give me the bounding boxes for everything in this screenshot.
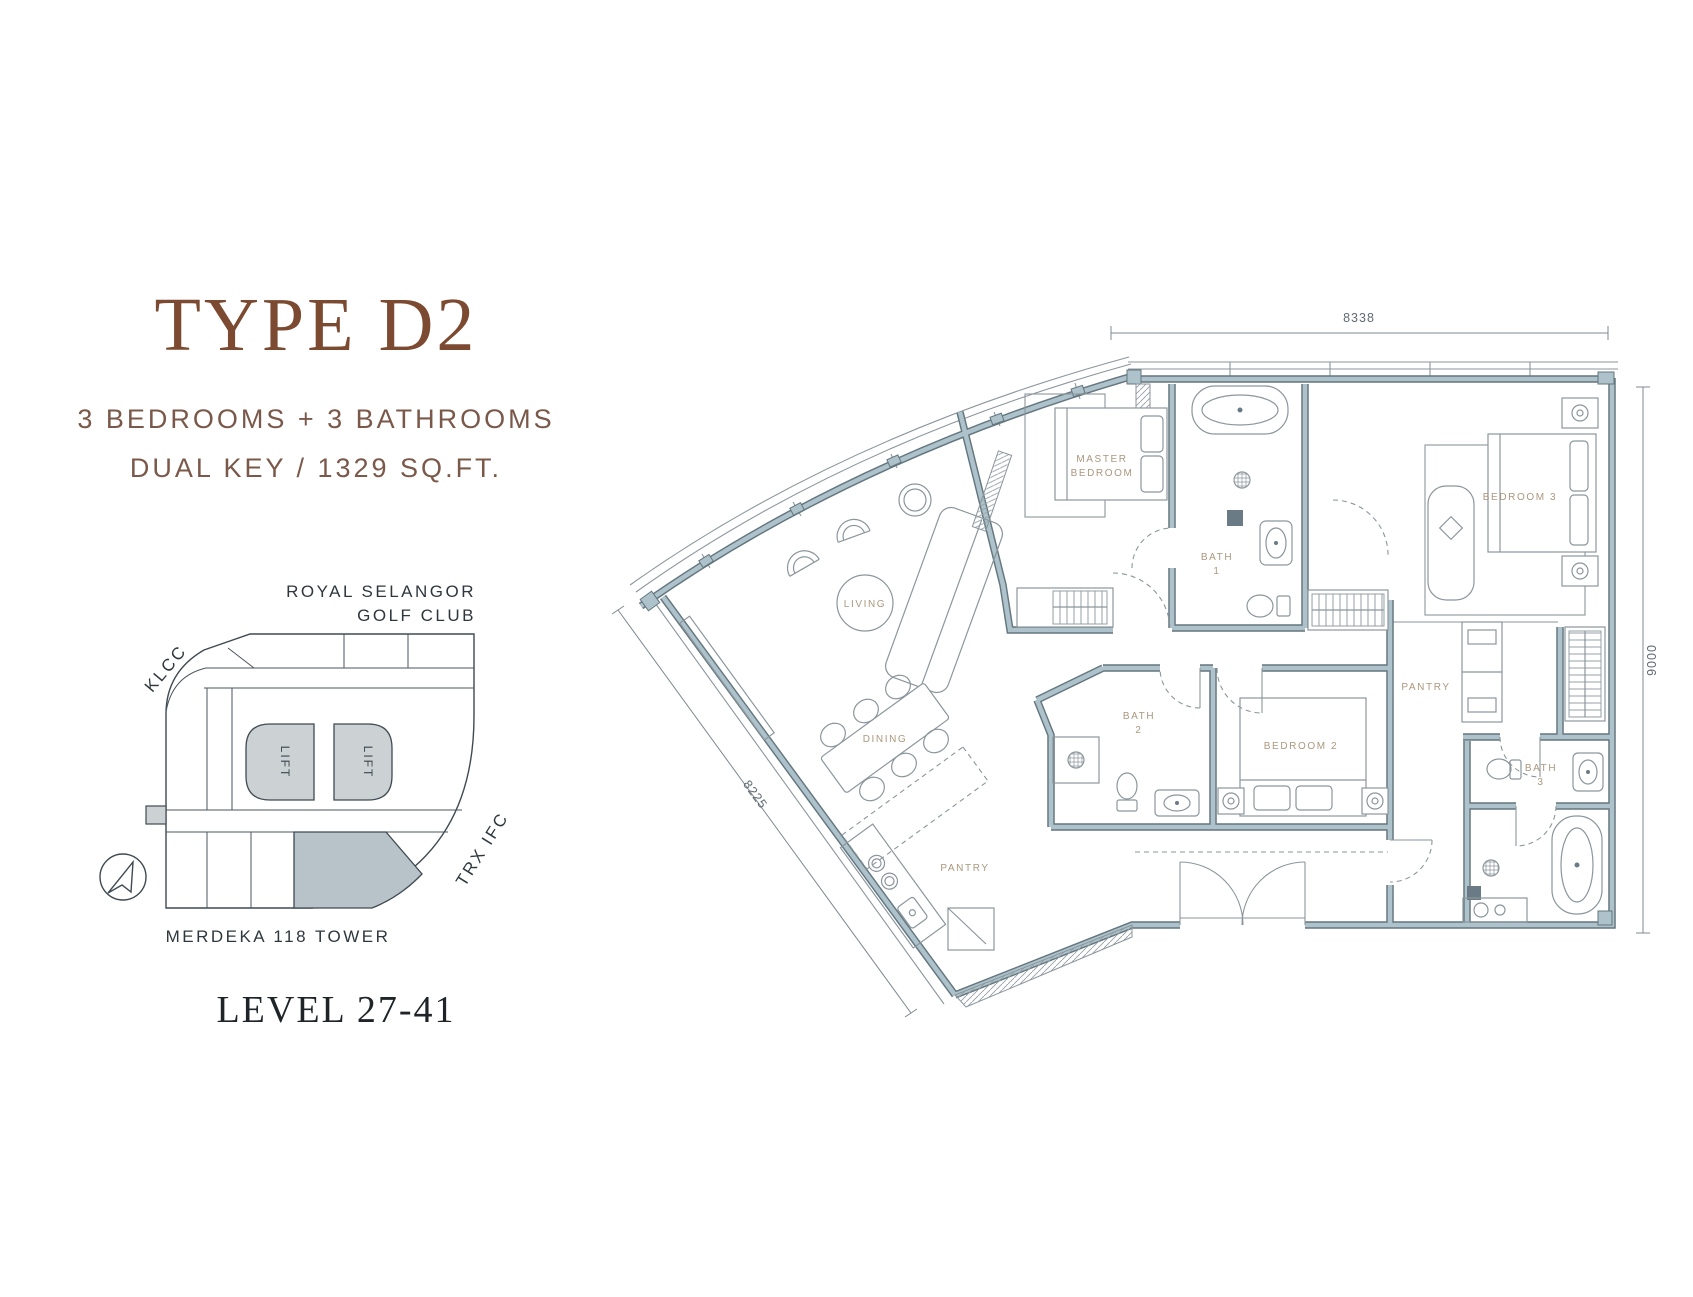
lift-label-1: LIFT [278, 746, 292, 779]
lift-label-2: LIFT [361, 746, 375, 779]
subtitle-area: DUAL KEY / 1329 SQ.FT. [130, 453, 502, 483]
bath2-fixtures [1053, 737, 1199, 816]
nightstand [1562, 556, 1598, 586]
room-label-pantry-kitchen: PANTRY [940, 863, 989, 874]
key-plan: ROYAL SELANGOR GOLF CLUB KLCC TRX IFC ME… [100, 582, 513, 1031]
room-label-bedroom3: BEDROOM 3 [1483, 492, 1557, 503]
bedroom3-furniture [1425, 398, 1605, 721]
room-label-master-bedroom-line2: BEDROOM [1071, 468, 1134, 479]
toilet [1487, 759, 1511, 779]
title-block: TYPE D2 3 BEDROOMS + 3 BATHROOMS DUAL KE… [77, 283, 554, 483]
bedroom2-bed [1240, 698, 1366, 816]
nightstand [1218, 788, 1244, 814]
room-label-bath3-line1: BATH [1525, 763, 1557, 774]
armchair [781, 545, 819, 577]
landmark-trx-ifc: TRX IFC [452, 809, 512, 890]
room-label-bath1-line2: 1 [1213, 566, 1220, 577]
landmark-golf-club-line2: GOLF CLUB [357, 606, 476, 625]
level-label: LEVEL 27-41 [216, 989, 455, 1031]
room-label-bath2-line2: 2 [1135, 725, 1142, 736]
dimension-right: 9000 [1645, 644, 1659, 676]
landmark-klcc: KLCC [141, 641, 191, 696]
room-label-bath3-line2: 3 [1537, 777, 1544, 788]
room-label-master-bedroom-line1: MASTER [1076, 454, 1127, 465]
page-title: TYPE D2 [155, 283, 478, 367]
floor-plan-sheet: TYPE D2 3 BEDROOMS + 3 BATHROOMS DUAL KE… [0, 0, 1693, 1297]
kitchen-counter [840, 824, 945, 948]
compass-icon [100, 854, 146, 900]
room-label-bedroom2: BEDROOM 2 [1264, 741, 1338, 752]
shower-drain [1483, 860, 1499, 876]
landmark-golf-club-line1: ROYAL SELANGOR [286, 582, 476, 601]
nightstand [1562, 398, 1598, 428]
landmark-merdeka-118: MERDEKA 118 TOWER [166, 927, 391, 946]
armchair [832, 515, 870, 543]
toilet [1117, 773, 1137, 799]
bath3-fixtures [1463, 753, 1603, 922]
highlighted-unit [294, 832, 422, 908]
service-ledge [955, 925, 1132, 1007]
dimension-top: 8338 [1343, 311, 1375, 325]
subtitle-bedrooms: 3 BEDROOMS + 3 BATHROOMS [77, 404, 554, 434]
chaise [1428, 486, 1474, 600]
room-label-dining: DINING [863, 734, 908, 745]
shower-drain [1234, 472, 1250, 488]
key-plan-service-block [146, 806, 166, 824]
unit-floor-plan: 8338 9000 8225 MASTER BEDROOM BATH 1 BED… [612, 311, 1659, 1017]
nightstand [1362, 788, 1388, 814]
room-label-living: LIVING [844, 599, 886, 610]
room-label-bath2-line1: BATH [1123, 711, 1155, 722]
living-furniture [680, 394, 1105, 740]
room-label-bath1-line1: BATH [1201, 552, 1233, 563]
toilet [1247, 595, 1273, 617]
pantry-studio-cabinet [1462, 622, 1502, 722]
washer [1227, 510, 1243, 526]
bath1-fixtures [1192, 386, 1292, 617]
room-label-pantry-studio: PANTRY [1401, 682, 1450, 693]
shower-drain [1068, 752, 1084, 768]
dimension-left: 8225 [740, 778, 770, 812]
